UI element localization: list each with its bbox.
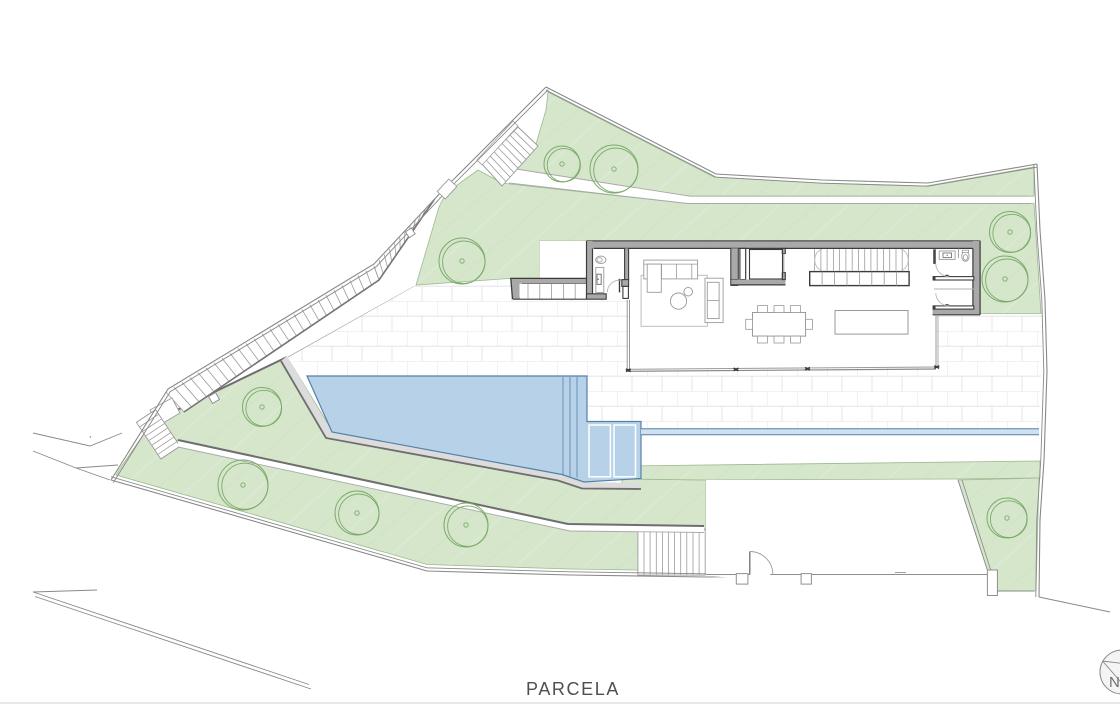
svg-text:PARCELA: PARCELA — [526, 679, 620, 699]
svg-text:N: N — [1109, 674, 1120, 691]
